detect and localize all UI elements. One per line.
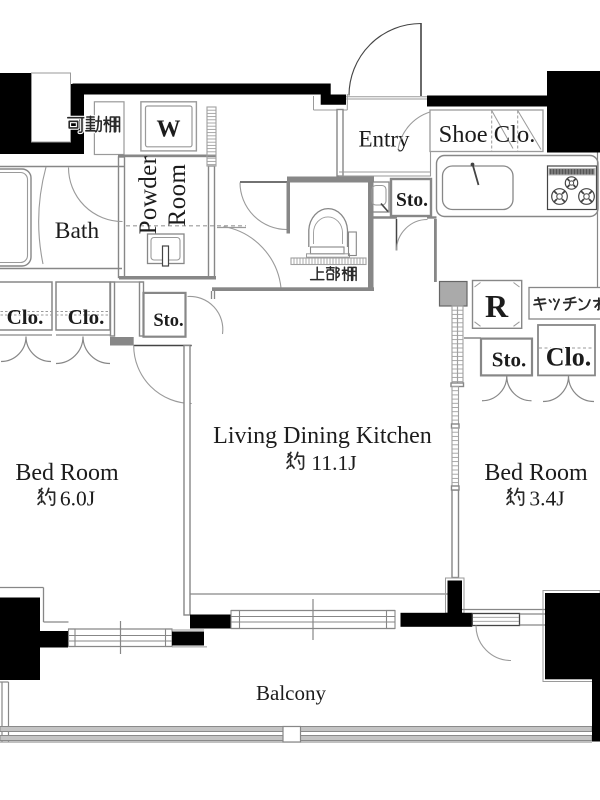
svg-text:Clo.: Clo. [546,343,592,372]
svg-text:Powder: Powder [135,155,162,234]
svg-text:11.1J: 11.1J [311,451,356,475]
svg-text:Entry: Entry [358,127,410,152]
svg-text:Sto.: Sto. [492,348,526,372]
svg-text:Clo.: Clo. [68,305,105,329]
svg-text:Bed Room: Bed Room [15,460,119,486]
svg-text:Sto.: Sto. [153,311,183,331]
svg-text:Shoe Clo.: Shoe Clo. [439,121,536,148]
svg-text:Sto.: Sto. [396,190,428,211]
svg-text:Bed Room: Bed Room [484,460,588,486]
svg-text:Bath: Bath [55,218,100,244]
svg-text:6.0J: 6.0J [60,487,95,511]
svg-text:W: W [157,117,181,143]
svg-text:R: R [485,288,509,324]
svg-text:Room: Room [164,163,191,226]
svg-text:Clo.: Clo. [7,305,44,329]
svg-text:Living Dining Kitchen: Living Dining Kitchen [213,423,432,449]
svg-text:Balcony: Balcony [256,681,326,705]
svg-text:3.4J: 3.4J [529,487,564,511]
